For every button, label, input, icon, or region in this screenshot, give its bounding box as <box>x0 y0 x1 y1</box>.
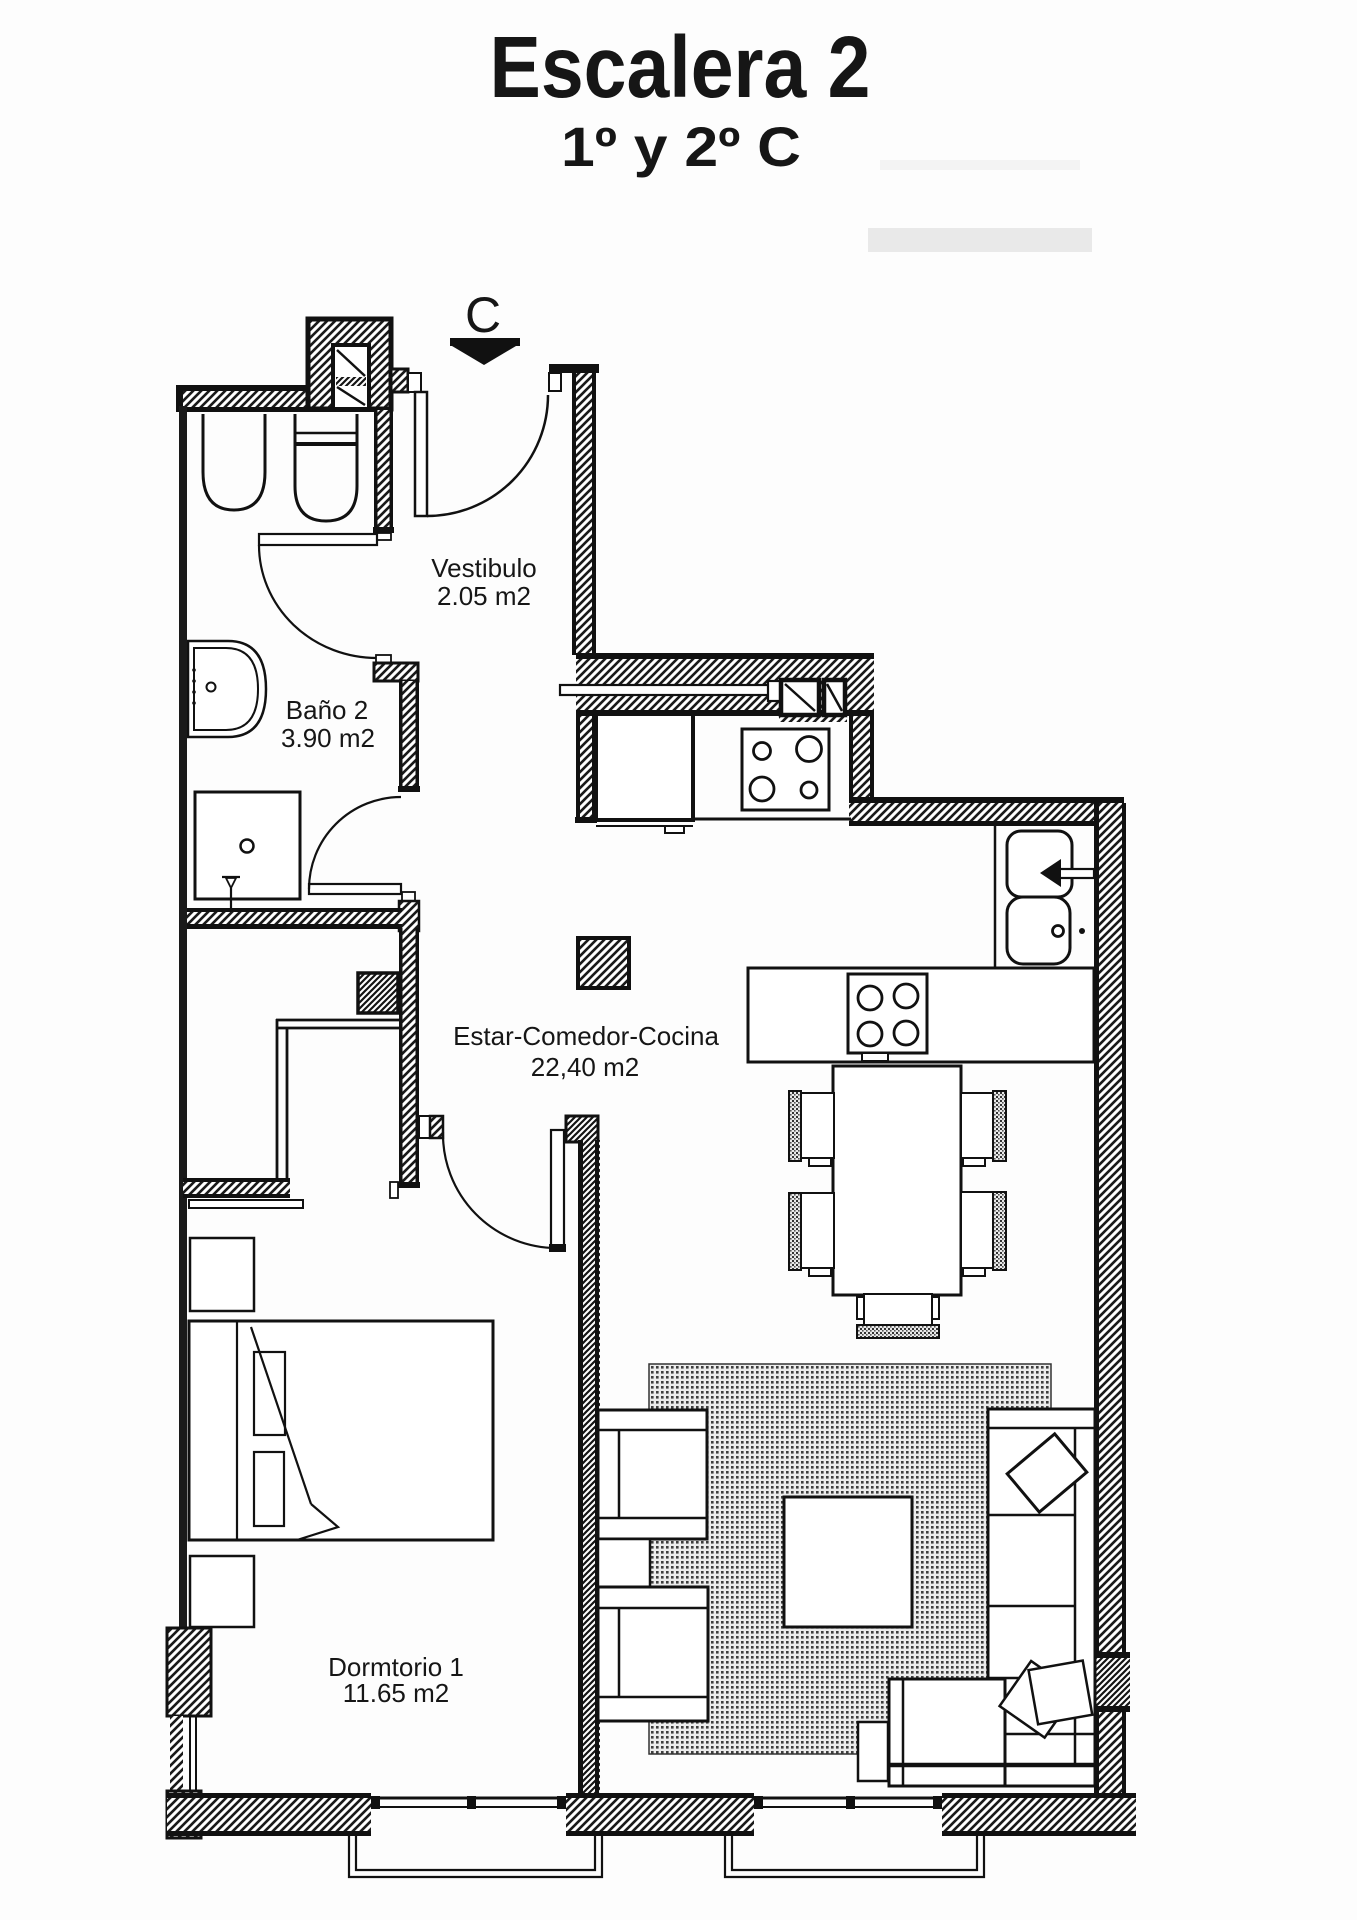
svg-text:Vestibulo: Vestibulo <box>431 553 537 583</box>
svg-text:C: C <box>465 287 501 343</box>
svg-text:Estar-Comedor-Cocina: Estar-Comedor-Cocina <box>453 1021 719 1051</box>
svg-text:22,40 m2: 22,40 m2 <box>531 1052 639 1082</box>
svg-text:3.90 m2: 3.90 m2 <box>281 723 375 753</box>
svg-text:2.05 m2: 2.05 m2 <box>437 581 531 611</box>
svg-text:1º y 2º C: 1º y 2º C <box>561 115 801 178</box>
svg-text:Baño 2: Baño 2 <box>286 695 368 725</box>
svg-text:11.65 m2: 11.65 m2 <box>343 1678 449 1708</box>
svg-text:Escalera 2: Escalera 2 <box>490 19 871 116</box>
